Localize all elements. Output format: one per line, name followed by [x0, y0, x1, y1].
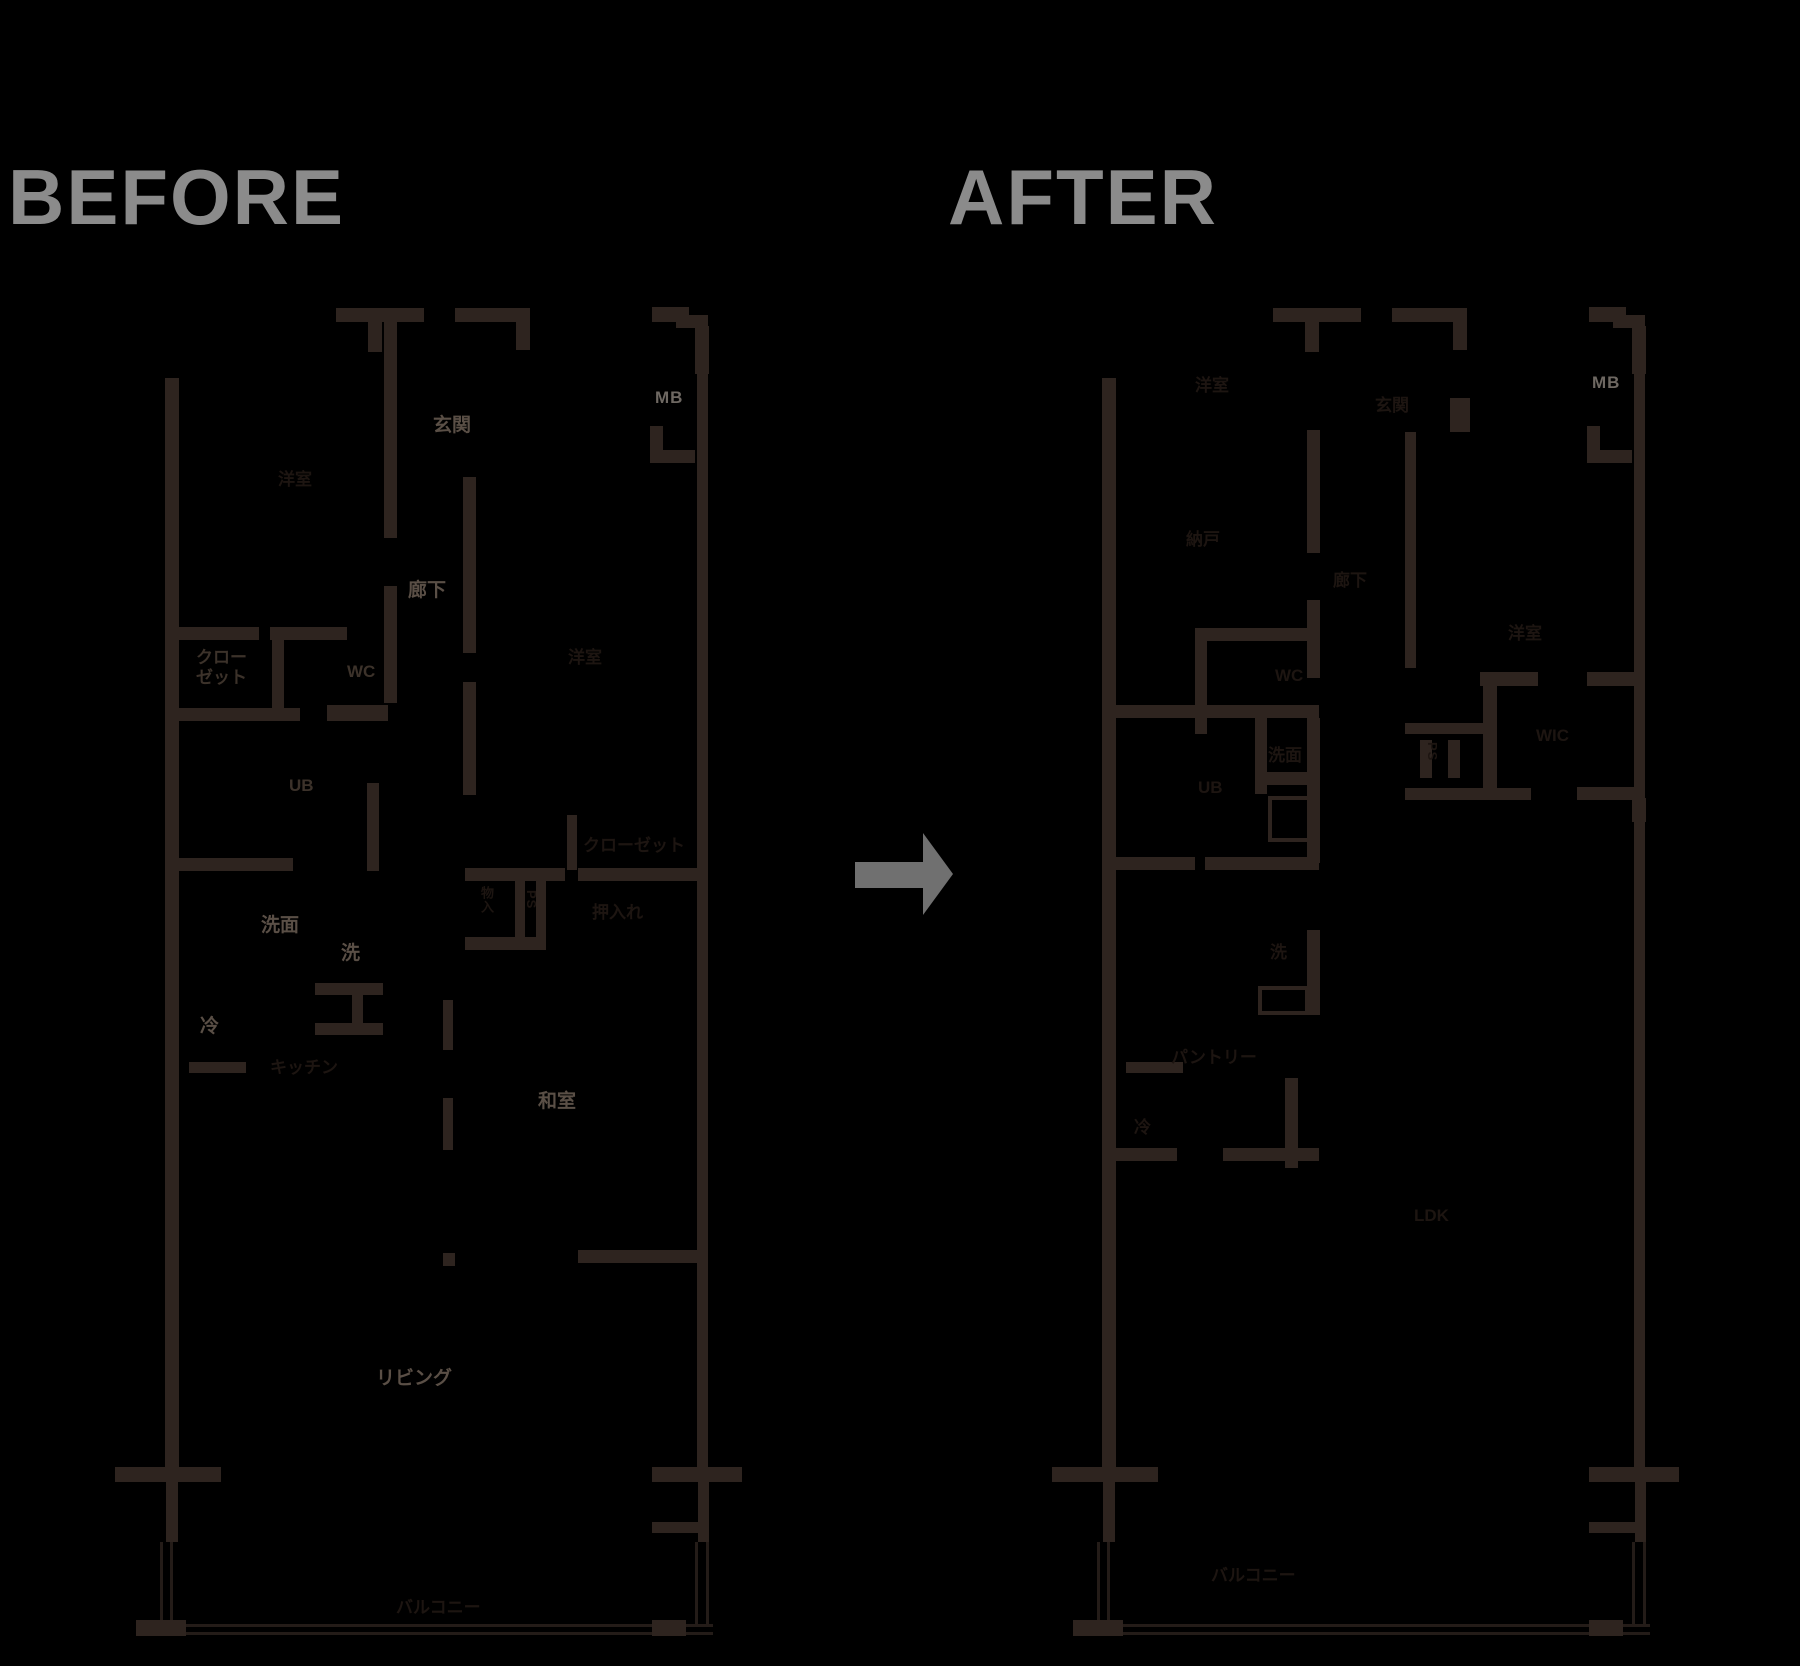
before-room-label-living: リビング [376, 1368, 452, 1390]
before-room-label-genkan: 玄関 [433, 415, 471, 437]
after-room-label-sen: 洗 [1270, 943, 1287, 963]
before-room-label-senmen: 洗面 [261, 915, 299, 937]
after-room-label-youshitsu-right: 洋室 [1508, 624, 1542, 644]
before-after-floorplan-comparison: BEFORE AFTER [0, 0, 1800, 1666]
before-room-label-oshiire: 押入れ [592, 903, 643, 923]
before-room-label-youshitsu-right: 洋室 [568, 648, 602, 668]
before-room-label-ps: PS [523, 890, 538, 909]
floorplan-drawing [0, 0, 1800, 1666]
before-room-label-closet1: クロー ゼット [196, 648, 247, 687]
after-room-label-youshitsu-top: 洋室 [1195, 376, 1229, 396]
after-room-label-ldk: LDK [1414, 1206, 1449, 1226]
after-room-label-wic: WIC [1536, 726, 1569, 746]
after-room-label-ub: UB [1198, 778, 1223, 798]
after-room-label-balcony: バルコニー [1211, 1566, 1296, 1586]
before-room-label-ub: UB [289, 776, 314, 796]
after-plan-walls [1052, 307, 1679, 1636]
before-room-label-closet2: クローゼット [583, 836, 685, 856]
before-room-label-rouka: 廊下 [408, 580, 446, 602]
after-room-label-senmen: 洗面 [1268, 746, 1302, 766]
before-plan-walls [115, 307, 742, 1636]
before-room-label-mb: MB [655, 388, 683, 408]
after-room-label-rei: 冷 [1134, 1118, 1151, 1138]
before-room-label-sen: 洗 [341, 943, 360, 965]
before-room-label-washitsu: 和室 [538, 1091, 576, 1113]
after-room-label-ps: PS [1424, 742, 1439, 761]
before-room-label-kitchen: キッチン [270, 1058, 338, 1078]
after-room-label-genkan: 玄関 [1375, 396, 1409, 416]
before-room-label-wc: WC [347, 662, 375, 682]
after-room-label-mb: MB [1592, 373, 1620, 393]
before-room-label-rei: 冷 [200, 1016, 219, 1038]
after-room-label-nando: 納戸 [1186, 530, 1220, 550]
after-room-label-pantry: パントリー [1171, 1048, 1257, 1068]
before-room-label-balcony: バルコニー [396, 1598, 481, 1618]
before-room-label-monoire: 物入 [478, 886, 493, 914]
right-arrow-icon [855, 833, 953, 915]
after-room-label-rouka: 廊下 [1333, 571, 1367, 591]
after-room-label-wc: WC [1275, 666, 1303, 686]
before-room-label-youshitsu-left: 洋室 [278, 470, 312, 490]
